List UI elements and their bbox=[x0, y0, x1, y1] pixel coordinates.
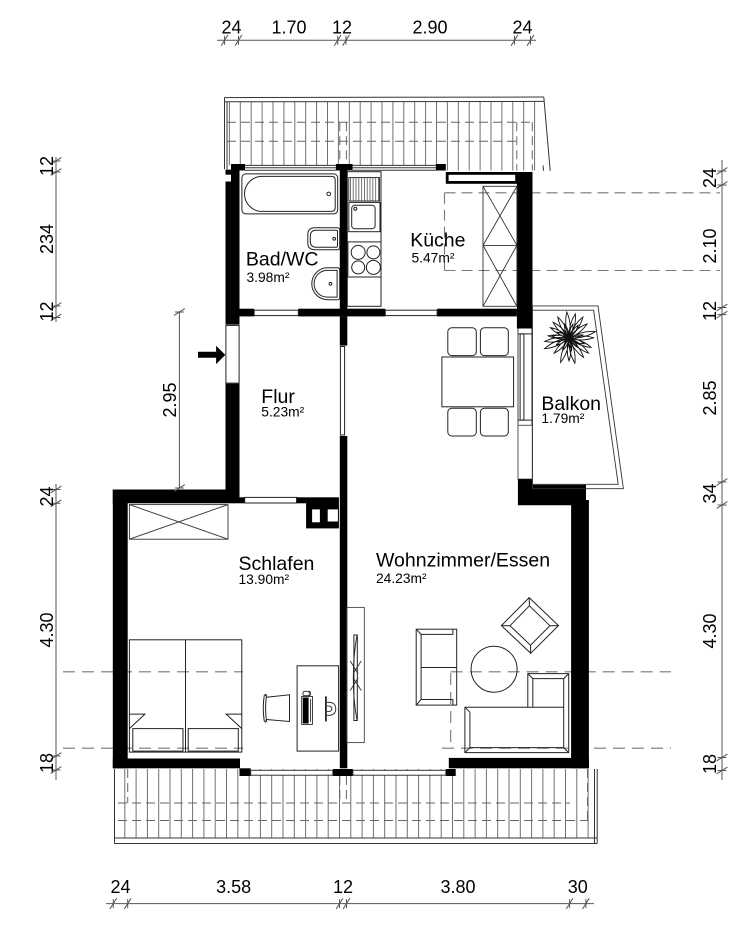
svg-text:3.80: 3.80 bbox=[440, 877, 475, 897]
svg-text:1.79m²: 1.79m² bbox=[541, 411, 584, 426]
svg-text:18: 18 bbox=[700, 754, 720, 774]
svg-text:Küche: Küche bbox=[410, 229, 465, 251]
svg-text:24: 24 bbox=[221, 18, 241, 38]
svg-text:5.47m²: 5.47m² bbox=[412, 251, 455, 266]
svg-text:18: 18 bbox=[37, 753, 57, 773]
svg-text:2.85: 2.85 bbox=[700, 380, 720, 415]
svg-text:12: 12 bbox=[37, 156, 57, 176]
svg-text:12: 12 bbox=[37, 301, 57, 321]
svg-text:2.90: 2.90 bbox=[412, 18, 447, 38]
svg-text:24: 24 bbox=[37, 486, 57, 506]
svg-text:3.58: 3.58 bbox=[216, 877, 251, 897]
svg-text:24: 24 bbox=[512, 18, 532, 38]
svg-text:24: 24 bbox=[110, 877, 130, 897]
svg-text:1.70: 1.70 bbox=[271, 18, 306, 38]
svg-text:13.90m²: 13.90m² bbox=[239, 572, 290, 587]
svg-text:Wohnzimmer/Essen: Wohnzimmer/Essen bbox=[376, 549, 550, 571]
svg-text:24.23m²: 24.23m² bbox=[376, 571, 427, 586]
svg-text:4.30: 4.30 bbox=[700, 613, 720, 648]
svg-text:12: 12 bbox=[333, 877, 353, 897]
svg-text:12: 12 bbox=[700, 301, 720, 321]
svg-text:4.30: 4.30 bbox=[37, 612, 57, 647]
svg-text:Bad/WC: Bad/WC bbox=[246, 249, 319, 271]
svg-text:12: 12 bbox=[332, 18, 352, 38]
svg-text:24: 24 bbox=[700, 168, 720, 188]
svg-text:2.10: 2.10 bbox=[700, 228, 720, 263]
svg-text:5.23m²: 5.23m² bbox=[261, 405, 304, 420]
svg-text:34: 34 bbox=[700, 483, 720, 503]
svg-text:3.98m²: 3.98m² bbox=[247, 270, 290, 285]
svg-text:234: 234 bbox=[37, 224, 57, 254]
svg-text:30: 30 bbox=[568, 877, 588, 897]
svg-text:2.95: 2.95 bbox=[160, 382, 180, 417]
